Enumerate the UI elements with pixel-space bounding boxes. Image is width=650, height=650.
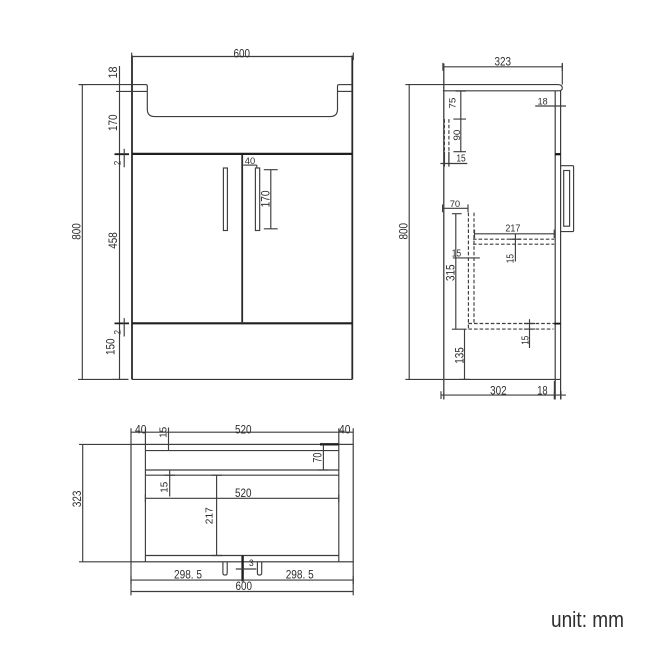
svg-text:3: 3 xyxy=(249,558,254,569)
svg-text:298. 5: 298. 5 xyxy=(174,568,202,582)
svg-text:800: 800 xyxy=(397,223,411,240)
svg-text:150: 150 xyxy=(104,338,118,355)
svg-text:520: 520 xyxy=(235,486,252,500)
svg-text:18: 18 xyxy=(537,383,548,397)
svg-text:2: 2 xyxy=(112,330,122,335)
svg-text:unit: mm: unit: mm xyxy=(551,607,624,632)
svg-text:298. 5: 298. 5 xyxy=(286,568,314,582)
svg-text:2: 2 xyxy=(112,161,122,166)
svg-text:217: 217 xyxy=(205,507,216,524)
svg-text:520: 520 xyxy=(235,423,252,437)
svg-text:15: 15 xyxy=(158,426,169,437)
svg-text:90: 90 xyxy=(452,130,463,141)
svg-text:15: 15 xyxy=(452,249,462,260)
svg-text:302: 302 xyxy=(490,383,507,397)
svg-text:135: 135 xyxy=(453,347,467,364)
svg-text:170: 170 xyxy=(259,190,273,207)
svg-text:600: 600 xyxy=(234,46,251,60)
svg-text:15: 15 xyxy=(160,481,171,492)
svg-text:18: 18 xyxy=(108,67,120,79)
svg-text:800: 800 xyxy=(70,223,84,240)
svg-text:170: 170 xyxy=(106,114,120,131)
svg-text:70: 70 xyxy=(450,199,461,210)
svg-text:315: 315 xyxy=(446,265,458,282)
svg-text:75: 75 xyxy=(448,98,459,109)
svg-text:15: 15 xyxy=(505,254,516,264)
svg-text:18: 18 xyxy=(538,96,548,107)
svg-text:458: 458 xyxy=(106,232,120,249)
svg-text:40: 40 xyxy=(339,423,351,437)
svg-text:217: 217 xyxy=(505,223,520,234)
svg-text:40: 40 xyxy=(135,423,147,437)
svg-text:323: 323 xyxy=(495,54,512,68)
svg-text:323: 323 xyxy=(70,490,84,507)
svg-text:40: 40 xyxy=(245,156,255,167)
svg-text:70: 70 xyxy=(313,453,325,463)
svg-text:15: 15 xyxy=(456,153,466,164)
svg-text:15: 15 xyxy=(520,335,531,344)
svg-text:600: 600 xyxy=(236,579,253,593)
